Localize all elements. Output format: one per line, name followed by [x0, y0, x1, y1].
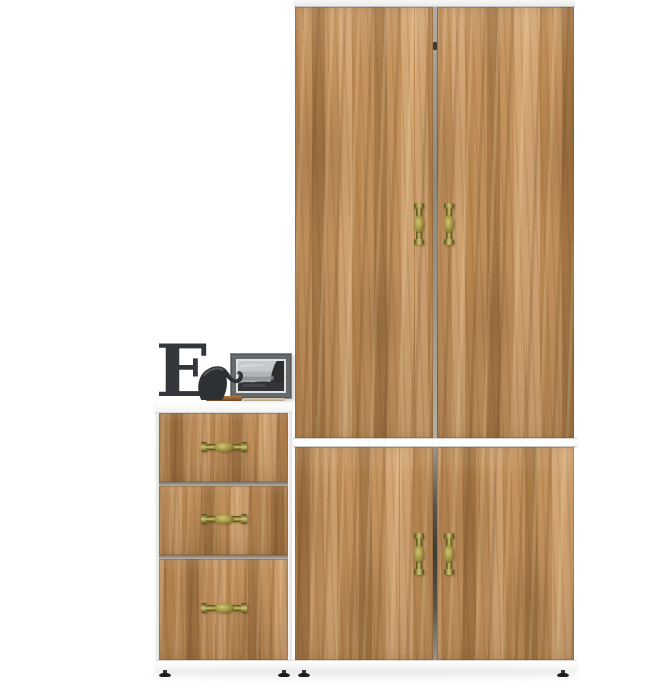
elephant-figurine	[195, 356, 245, 400]
pencil	[243, 398, 285, 401]
wardrobe-foot-left	[297, 670, 311, 678]
lower-right-door-handle	[443, 533, 455, 575]
wardrobe-foot-right	[556, 670, 570, 678]
floor-shadow	[150, 668, 580, 680]
upper-left-door-handle	[413, 203, 425, 245]
chest-foot-right	[277, 670, 291, 678]
drawer-3-handle	[201, 602, 247, 614]
decor: E	[0, 0, 666, 700]
chest-foot-left	[158, 670, 172, 678]
drawer-2-handle	[201, 513, 247, 525]
upper-right-door-handle	[443, 203, 455, 245]
lower-left-door-handle	[413, 533, 425, 575]
drawer-1-handle	[201, 441, 247, 453]
furniture-scene: E	[0, 0, 666, 700]
